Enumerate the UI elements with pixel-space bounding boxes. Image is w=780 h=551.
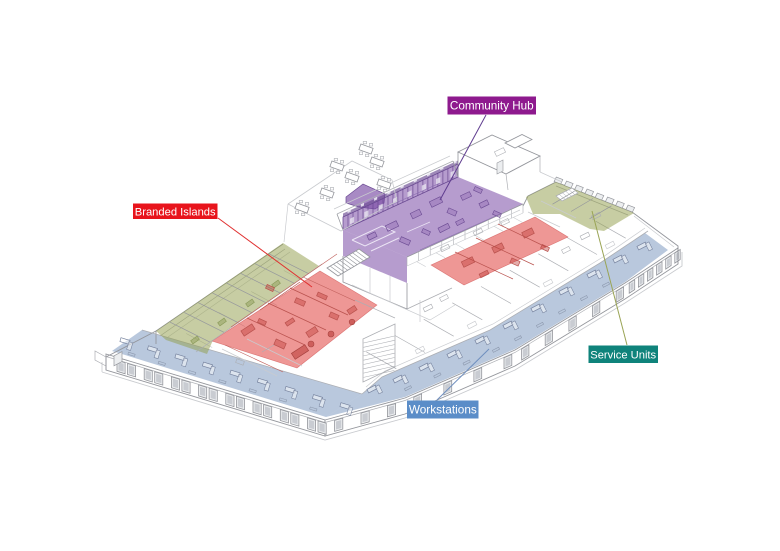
svg-text:Branded Islands: Branded Islands	[135, 206, 216, 218]
svg-text:Service Units: Service Units	[590, 349, 656, 361]
svg-text:Workstations: Workstations	[409, 403, 477, 417]
svg-text:Community Hub: Community Hub	[450, 100, 534, 113]
